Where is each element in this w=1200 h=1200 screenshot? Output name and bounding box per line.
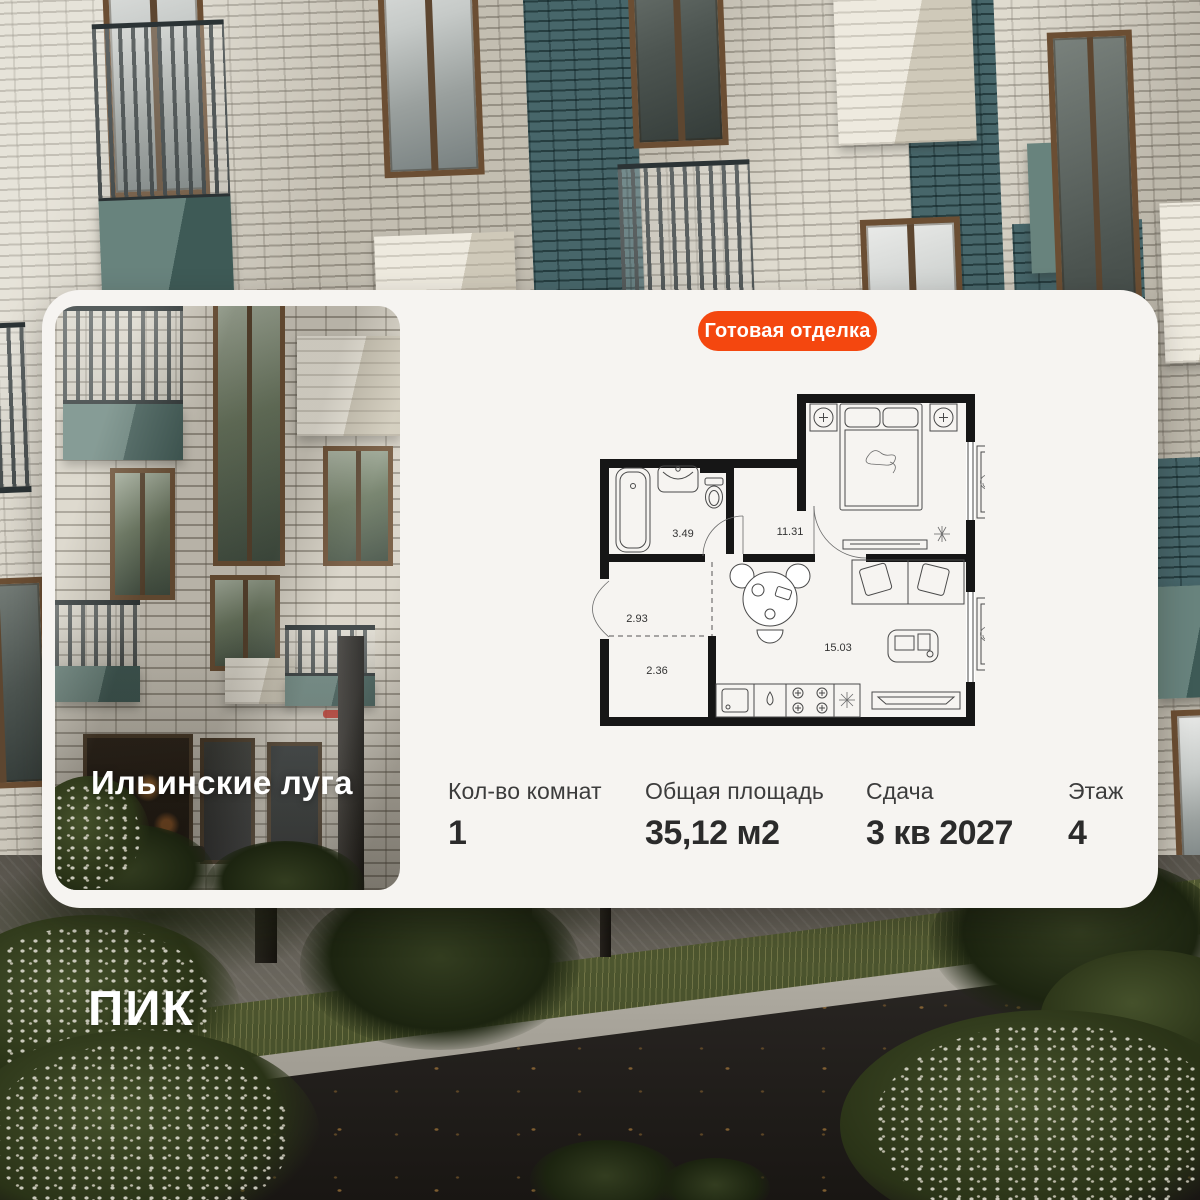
detail-label: Сдача — [866, 778, 1013, 805]
detail-floor: Этаж 4 — [1068, 778, 1123, 853]
finish-badge: Готовая отделка — [698, 311, 877, 351]
detail-label: Кол-во комнат — [448, 778, 602, 805]
pik-logo: ПИК — [88, 981, 194, 1037]
window — [625, 0, 729, 149]
balcony-railing — [55, 600, 140, 672]
window — [213, 306, 285, 566]
finish-badge-label: Готовая отделка — [704, 320, 870, 343]
balcony-white — [1159, 200, 1200, 363]
project-photo: Ильинские луга — [55, 306, 400, 890]
detail-label: Этаж — [1068, 778, 1123, 805]
lamp-post — [338, 636, 364, 890]
detail-completion: Сдача 3 кв 2027 — [866, 778, 1013, 853]
balcony-white — [831, 0, 976, 146]
balcony-railing — [0, 322, 32, 496]
window — [110, 468, 175, 600]
balcony-teal — [63, 404, 183, 460]
detail-rooms: Кол-во комнат 1 — [448, 778, 602, 853]
balcony-teal — [1154, 584, 1200, 699]
listing-card[interactable]: Ильинские луга Готовая отделка — [42, 290, 1158, 908]
window — [1171, 708, 1200, 870]
detail-value: 35,12 м2 — [645, 814, 824, 853]
room-area-living: 15.03 — [824, 642, 852, 654]
detail-value: 1 — [448, 814, 602, 853]
detail-area: Общая площадь 35,12 м2 — [645, 778, 824, 853]
balcony-railing — [63, 306, 183, 406]
floor-plan: 3.49 11.31 2.93 2.36 15.03 — [586, 394, 985, 735]
room-area-wardrobe: 2.36 — [646, 665, 667, 677]
balcony-teal — [55, 666, 140, 702]
balcony-railing — [92, 19, 231, 204]
project-name: Ильинские луга — [91, 764, 353, 802]
listing-ad: Ильинские луга Готовая отделка — [0, 0, 1200, 1200]
balcony-white — [297, 336, 400, 436]
window — [375, 0, 485, 178]
room-area-hallway: 2.93 — [626, 613, 647, 625]
detail-label: Общая площадь — [645, 778, 824, 805]
detail-value: 4 — [1068, 814, 1123, 853]
room-area-bedroom: 11.31 — [777, 526, 804, 538]
window — [210, 575, 280, 671]
detail-value: 3 кв 2027 — [866, 814, 1013, 853]
window — [323, 446, 393, 566]
room-area-bathroom: 3.49 — [672, 528, 693, 540]
